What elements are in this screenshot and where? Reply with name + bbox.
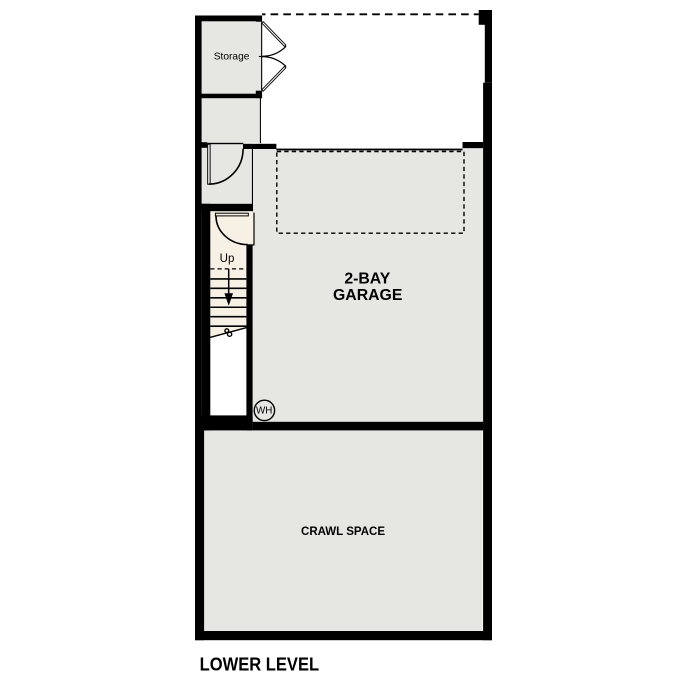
svg-text:Up: Up <box>220 253 235 265</box>
svg-text:GARAGE: GARAGE <box>333 287 402 304</box>
svg-text:Storage: Storage <box>214 52 250 63</box>
svg-text:2-BAY: 2-BAY <box>344 270 390 287</box>
svg-text:LOWER LEVEL: LOWER LEVEL <box>200 653 320 674</box>
svg-text:WH: WH <box>256 406 272 417</box>
svg-text:CRAWL SPACE: CRAWL SPACE <box>301 524 385 538</box>
